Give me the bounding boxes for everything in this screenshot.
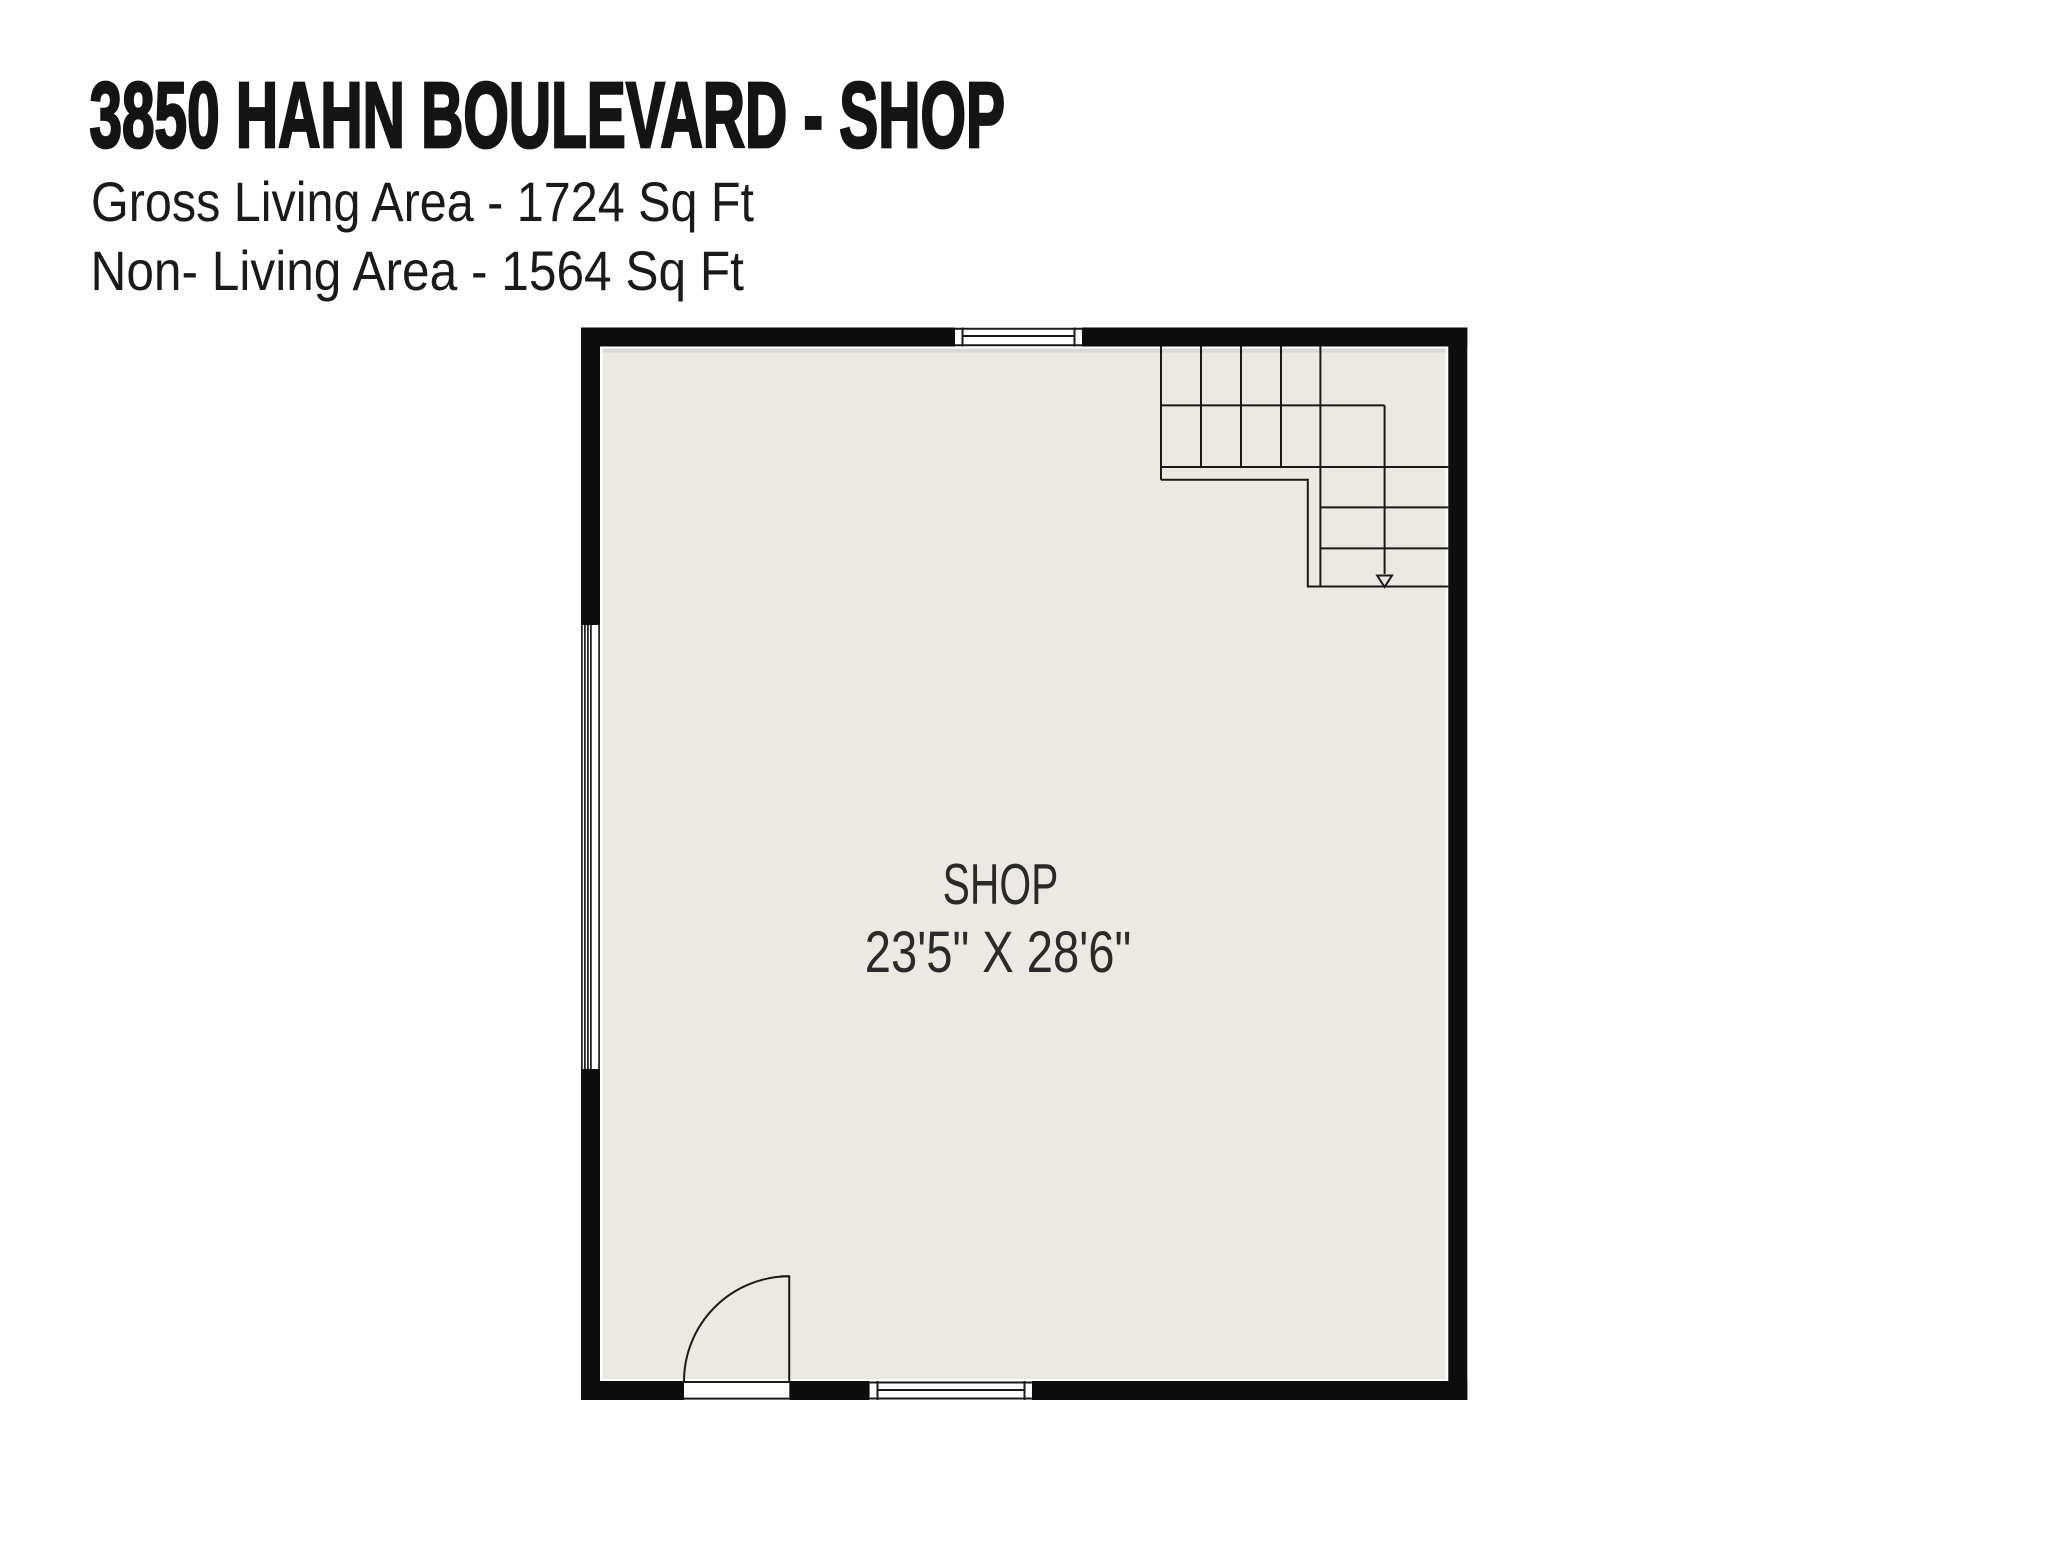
svg-text:3850 HAHN BOULEVARD - SHOP: 3850 HAHN BOULEVARD - SHOP [90,65,1005,168]
svg-text:Gross Living Area - 1724 Sq Ft: Gross Living Area - 1724 Sq Ft [91,172,754,234]
svg-text:Non- Living Area - 1564 Sq Ft: Non- Living Area - 1564 Sq Ft [91,240,745,302]
svg-text:SHOP: SHOP [943,852,1059,917]
svg-text:23'5" X 28'6": 23'5" X 28'6" [865,920,1131,985]
